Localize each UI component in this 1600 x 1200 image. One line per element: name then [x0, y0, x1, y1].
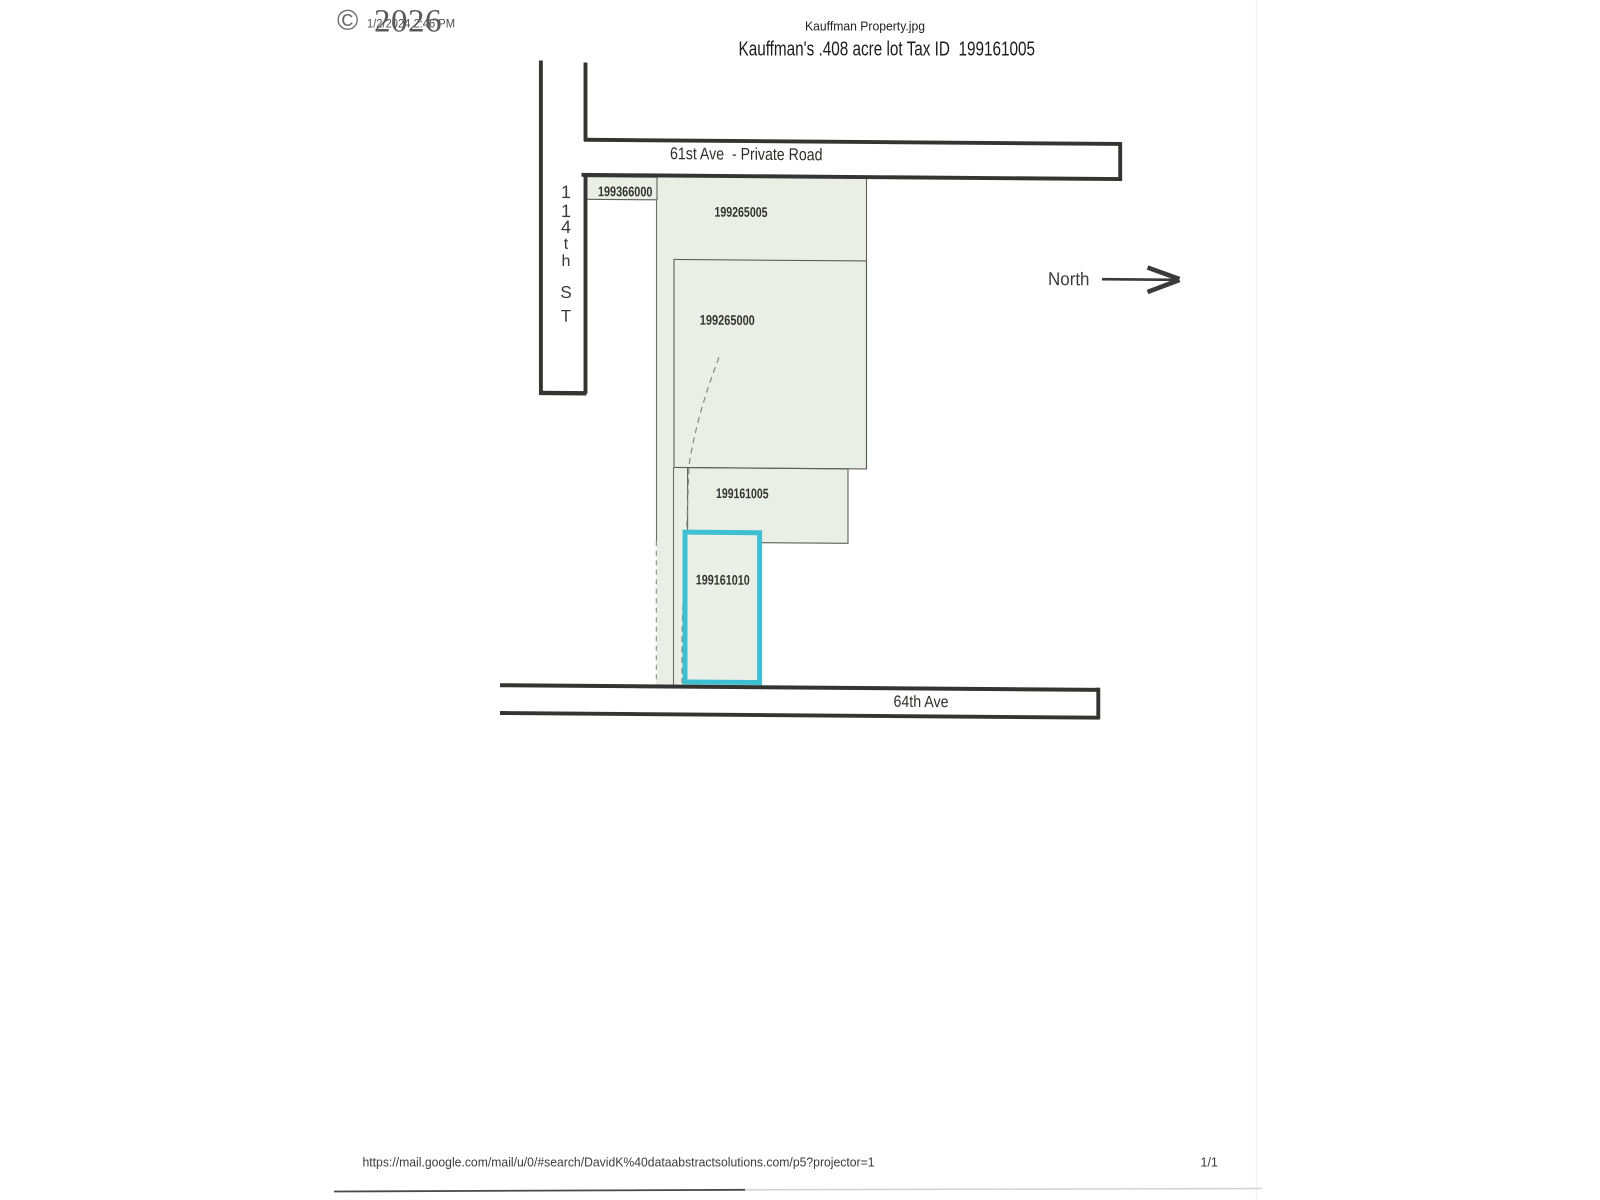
- svg-text:199265005: 199265005: [715, 204, 768, 220]
- svg-text:1/1: 1/1: [1201, 1156, 1218, 1170]
- svg-text:64th Ave: 64th Ave: [894, 693, 949, 711]
- svg-text:61st Ave - Private Road: 61st Ave - Private Road: [670, 144, 823, 164]
- svg-text:https://mail.google.com/mail/u: https://mail.google.com/mail/u/0/#search…: [363, 1156, 875, 1170]
- svg-text:©: ©: [337, 5, 358, 37]
- svg-text:1: 1: [561, 182, 571, 202]
- svg-text:T: T: [561, 307, 571, 326]
- svg-text:h: h: [562, 253, 571, 270]
- svg-text:Kauffman Property.jpg: Kauffman Property.jpg: [805, 20, 925, 34]
- svg-text:199161005: 199161005: [716, 485, 769, 501]
- svg-text:North: North: [1048, 268, 1090, 289]
- svg-text:t: t: [564, 236, 569, 253]
- svg-text:S: S: [560, 283, 571, 302]
- svg-text:Kauffman's .408 acre lot Tax I: Kauffman's .408 acre lot Tax ID 19916100…: [739, 38, 1036, 61]
- svg-text:2026: 2026: [374, 4, 442, 40]
- svg-text:199366000: 199366000: [598, 183, 653, 199]
- svg-text:199265000: 199265000: [700, 312, 755, 328]
- svg-text:199161010: 199161010: [696, 571, 750, 587]
- svg-text:4: 4: [561, 217, 571, 237]
